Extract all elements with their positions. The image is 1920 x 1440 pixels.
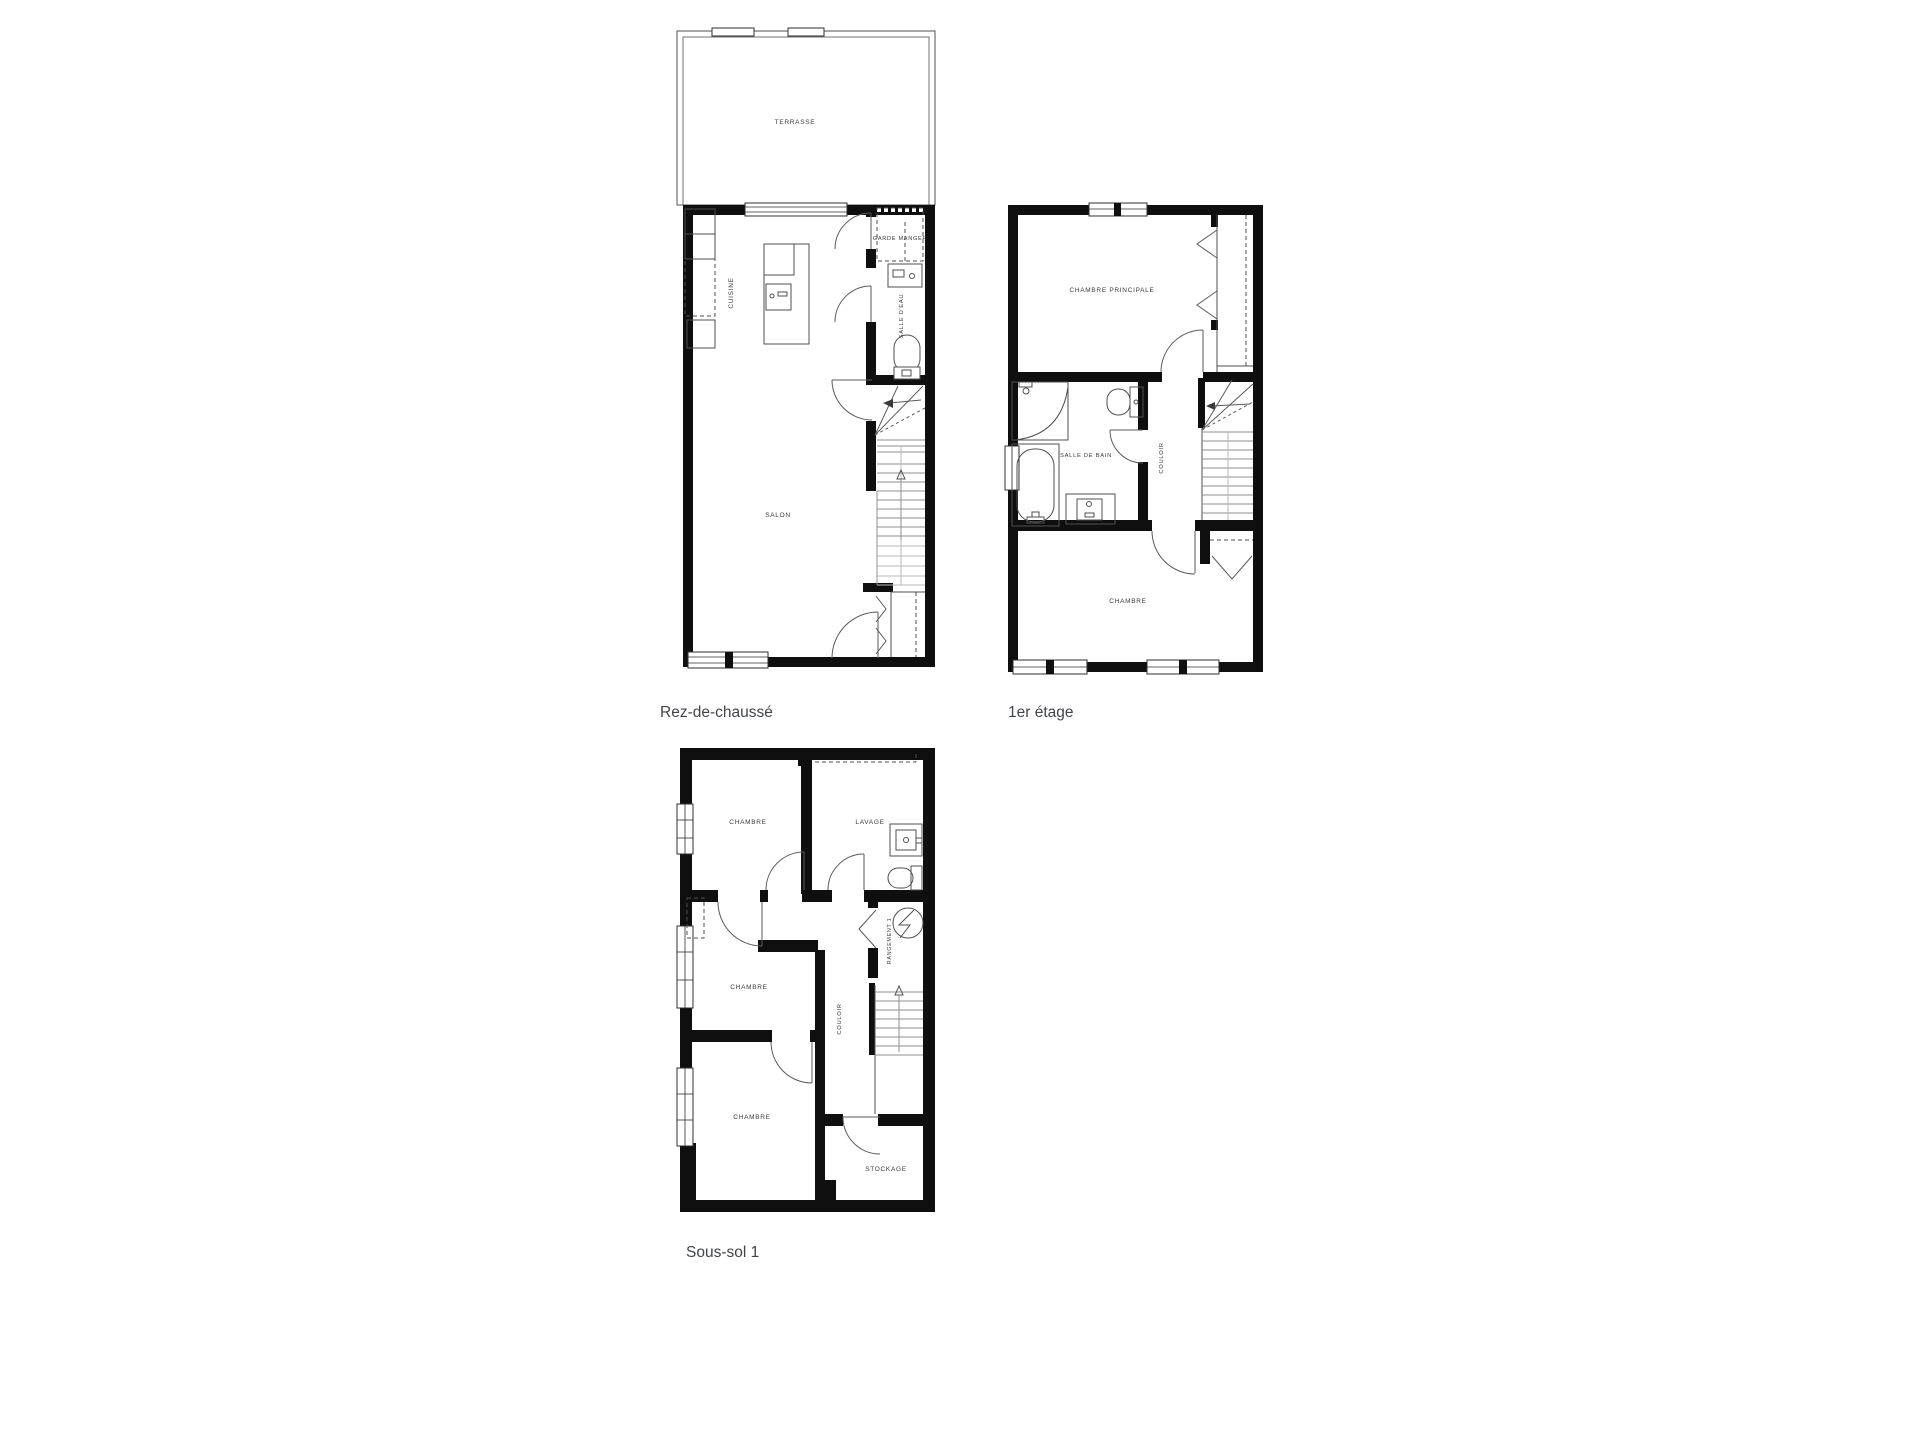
room-label-rangement: RANGEMENT 1 <box>887 918 893 965</box>
master-closet <box>1197 215 1253 372</box>
floor-title-sous-sol: Sous-sol 1 <box>686 1244 759 1261</box>
entry-closet <box>876 592 925 657</box>
room-label-chambre: CHAMBRE <box>1109 598 1146 605</box>
interior-walls <box>680 748 935 1202</box>
floor-1er-etage: CHAMBRE PRINCIPALE SALLE DE BAIN COULOIR… <box>1005 203 1263 721</box>
room-label-cuisine: CUISINE <box>728 277 735 308</box>
vanity-icon <box>1066 494 1115 524</box>
toilet-icon <box>894 335 920 379</box>
room-label-garde-manger: GARDE MANGER <box>873 236 927 242</box>
sink-icon <box>890 824 922 856</box>
terrace-outline <box>677 28 935 205</box>
floor-sous-sol: CHAMBRE LAVAGE CHAMBRE RANGEMENT 1 COULO… <box>677 748 935 1261</box>
shower-icon <box>1012 382 1068 440</box>
sink-icon <box>888 264 922 287</box>
room-label-terrasse: TERRASSE <box>775 119 816 126</box>
room-label-chambre-1: CHAMBRE <box>729 819 766 826</box>
room-label-salon: SALON <box>765 512 791 519</box>
floor-title-1er: 1er étage <box>1008 704 1074 721</box>
toilet-icon <box>888 866 922 890</box>
room-label-chambre-3: CHAMBRE <box>733 1114 770 1121</box>
room-label-couloir-ss: COULOIR <box>837 1003 843 1034</box>
kitchen-island-icon <box>764 244 809 344</box>
staircase <box>875 985 923 1114</box>
doors <box>718 852 880 1154</box>
room-label-chambre-principale: CHAMBRE PRINCIPALE <box>1069 287 1154 294</box>
bedroom-window-top <box>1089 203 1147 216</box>
room-label-chambre-2: CHAMBRE <box>730 984 767 991</box>
bedroom-closet <box>1210 540 1253 579</box>
staircase <box>1202 380 1253 520</box>
doors <box>1110 330 1203 574</box>
room-label-lavage: LAVAGE <box>855 819 884 826</box>
floor-title-rdc: Rez-de-chaussé <box>660 704 773 721</box>
room-label-stockage: STOCKAGE <box>865 1166 907 1173</box>
storage-bifold <box>859 910 876 948</box>
kitchen-window <box>745 203 847 216</box>
pantry-shelves <box>877 208 923 261</box>
staircase <box>875 386 925 585</box>
water-heater-icon <box>893 908 923 938</box>
floor-rez-de-chausse: TERRASSE <box>660 28 935 721</box>
floorplan-page: TERRASSE <box>0 0 1920 1440</box>
room-label-salle-de-bain: SALLE DE BAIN <box>1060 453 1112 459</box>
toilet-icon <box>1107 387 1143 417</box>
room-label-couloir: COULOIR <box>1159 442 1165 473</box>
salon-window <box>688 652 768 668</box>
room-label-salle-deau: SALLE D'EAU <box>899 294 905 339</box>
interior-walls <box>863 205 935 592</box>
floorplan-drawing: TERRASSE <box>0 0 1920 1440</box>
